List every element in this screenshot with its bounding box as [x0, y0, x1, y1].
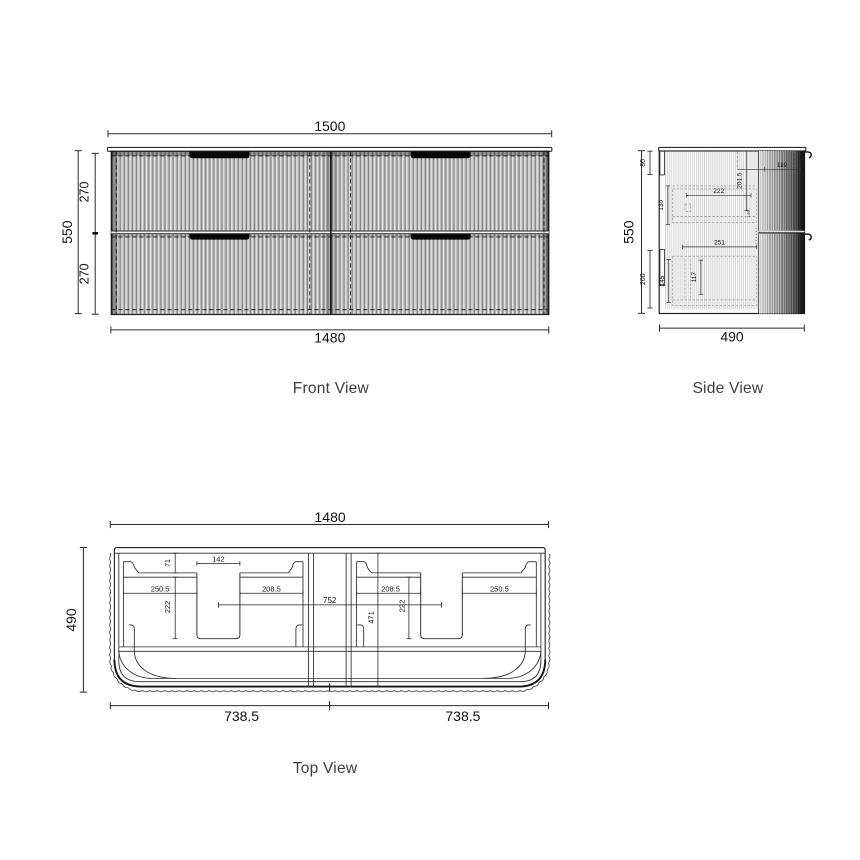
svg-text:250.5: 250.5 — [151, 584, 170, 593]
svg-text:550: 550 — [59, 220, 75, 244]
svg-text:270: 270 — [78, 263, 92, 284]
svg-text:738.5: 738.5 — [445, 708, 480, 724]
svg-text:270: 270 — [78, 182, 92, 203]
svg-text:222: 222 — [397, 600, 406, 613]
svg-text:130: 130 — [658, 199, 665, 210]
svg-text:Side View: Side View — [692, 380, 763, 397]
svg-text:71: 71 — [165, 559, 172, 567]
svg-text:490: 490 — [720, 328, 744, 344]
svg-text:490: 490 — [63, 608, 79, 632]
svg-text:Top View: Top View — [293, 760, 358, 777]
svg-text:222: 222 — [713, 188, 724, 195]
svg-text:1480: 1480 — [315, 509, 346, 525]
svg-text:145: 145 — [659, 275, 666, 286]
svg-text:222: 222 — [163, 601, 172, 614]
svg-text:738.5: 738.5 — [224, 708, 259, 724]
svg-text:Front View: Front View — [293, 380, 370, 397]
svg-text:1500: 1500 — [314, 118, 345, 134]
svg-text:146: 146 — [746, 210, 751, 218]
svg-text:208.5: 208.5 — [381, 584, 400, 593]
svg-text:208.5: 208.5 — [262, 584, 281, 593]
svg-text:752: 752 — [323, 596, 337, 605]
svg-text:201.5: 201.5 — [736, 172, 743, 189]
svg-text:471: 471 — [367, 611, 376, 624]
svg-text:119: 119 — [777, 162, 788, 169]
svg-text:117: 117 — [691, 272, 698, 283]
svg-text:550: 550 — [621, 220, 637, 244]
svg-text:250.5: 250.5 — [490, 584, 509, 593]
svg-text:142: 142 — [212, 555, 225, 564]
svg-text:1480: 1480 — [314, 329, 345, 345]
svg-text:251: 251 — [714, 240, 725, 247]
